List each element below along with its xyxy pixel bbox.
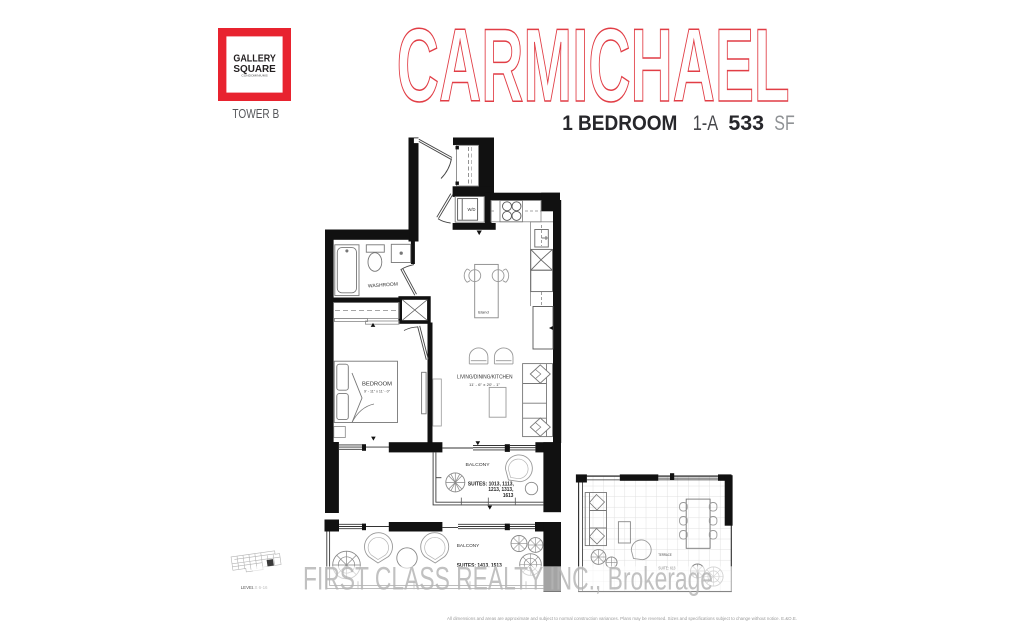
svg-text:533: 533 [728, 112, 764, 135]
svg-text:BALCONY: BALCONY [466, 462, 491, 468]
svg-text:BEDROOM: BEDROOM [362, 382, 392, 388]
svg-text:Island: Island [478, 309, 489, 314]
svg-text:GALLERY: GALLERY [233, 53, 276, 64]
svg-text:SF: SF [774, 112, 794, 135]
svg-text:11' - 6" x 20' - 1": 11' - 6" x 20' - 1" [469, 382, 501, 387]
svg-text:All dimensions and areas are a: All dimensions and areas are approximate… [447, 616, 797, 621]
svg-text:CARMICHAEL: CARMICHAEL [397, 9, 790, 124]
svg-text:1613: 1613 [503, 493, 514, 499]
svg-text:CONDOMINIUMS: CONDOMINIUMS [241, 74, 267, 78]
svg-text:BALCONY: BALCONY [457, 543, 480, 549]
svg-text:1-A: 1-A [693, 112, 719, 135]
svg-text:W/D: W/D [468, 207, 476, 212]
svg-text:1 BEDROOM: 1 BEDROOM [562, 112, 677, 135]
svg-text:9' - 11" x 11' - 0": 9' - 11" x 11' - 0" [364, 389, 391, 394]
svg-text:TOWER B: TOWER B [232, 107, 279, 121]
svg-text:TERRACE: TERRACE [658, 552, 672, 557]
svg-text:LIVING/DINING/KITCHEN: LIVING/DINING/KITCHEN [457, 375, 513, 381]
svg-text:FIRST CLASS REALTY INC., Broke: FIRST CLASS REALTY INC., Brokerage [303, 561, 713, 597]
